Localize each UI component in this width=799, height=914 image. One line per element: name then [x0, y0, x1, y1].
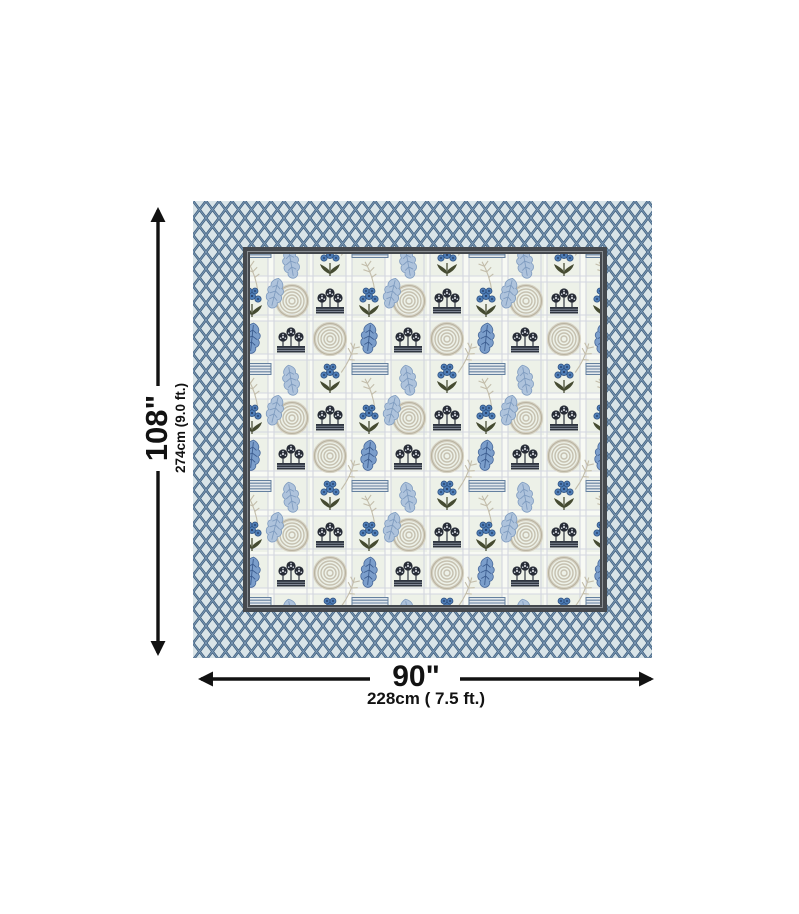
- height-metric-label: 274cm (9.0 ft.): [174, 348, 192, 508]
- bedsheet-photo: [193, 201, 652, 658]
- floral-print-panel: [250, 254, 600, 605]
- bedsheet-fabric-graphic: [193, 201, 652, 658]
- width-metric-label: 228cm ( 7.5 ft.): [326, 690, 526, 707]
- width-inches-label: 90": [356, 662, 476, 692]
- product-dimension-diagram: 108" 274cm (9.0 ft.) 90" 228cm ( 7.5 ft.…: [0, 0, 799, 914]
- height-inches-label: 108": [141, 358, 177, 498]
